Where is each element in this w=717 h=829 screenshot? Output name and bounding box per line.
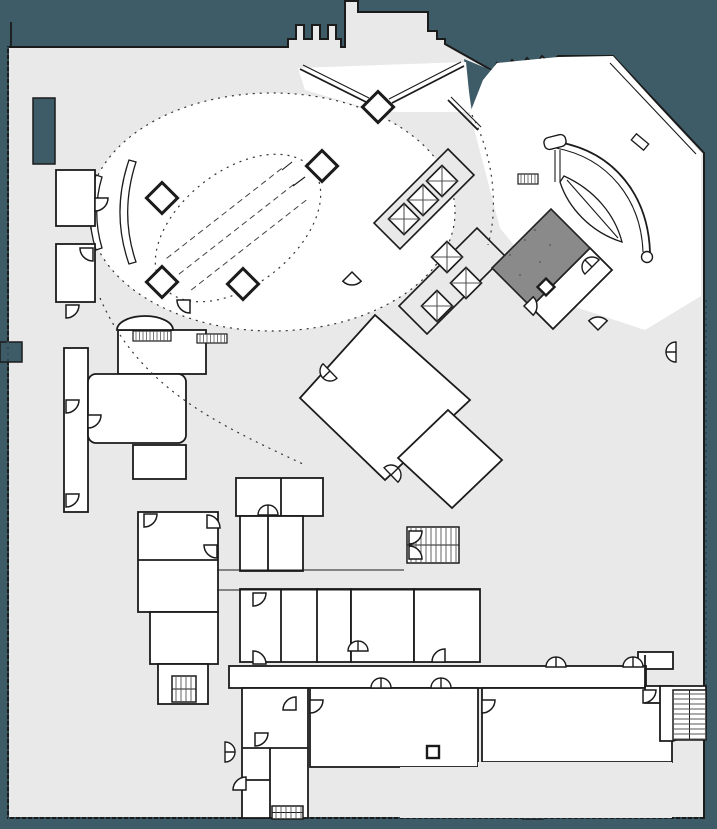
- stair-icon: [673, 690, 706, 740]
- floor-plan-drawing: [0, 0, 717, 829]
- room-s-cluster: [242, 688, 308, 818]
- column-icon: [427, 746, 439, 758]
- ramp-end-cap: [642, 252, 653, 263]
- room-mid-b: [240, 589, 318, 662]
- east-property-strip: [707, 153, 717, 829]
- room-mid-upper: [236, 478, 323, 516]
- west-mid-notch: [0, 342, 22, 362]
- stair-icon: [172, 676, 196, 702]
- west-notch: [33, 98, 55, 164]
- room-sw-lower: [150, 612, 218, 664]
- floor-plan-page: [0, 0, 717, 829]
- room-s-large-a: [310, 688, 478, 767]
- ballroom-b: [414, 589, 480, 662]
- room-mid-c: [317, 589, 351, 662]
- room-sw-block: [138, 512, 218, 612]
- west-service-corridor: [64, 348, 88, 512]
- counter-hatch-icon: [518, 174, 538, 184]
- counter-hatch-icon: [133, 331, 171, 341]
- room-west-main: [88, 374, 186, 443]
- room-west-small: [133, 445, 186, 479]
- south-apron: [400, 762, 672, 818]
- stair-icon: [272, 806, 303, 819]
- south-wing: [229, 652, 706, 818]
- room-mid-a: [240, 516, 303, 571]
- counter-hatch-icon: [197, 334, 227, 343]
- room-west-upper-a: [56, 170, 95, 226]
